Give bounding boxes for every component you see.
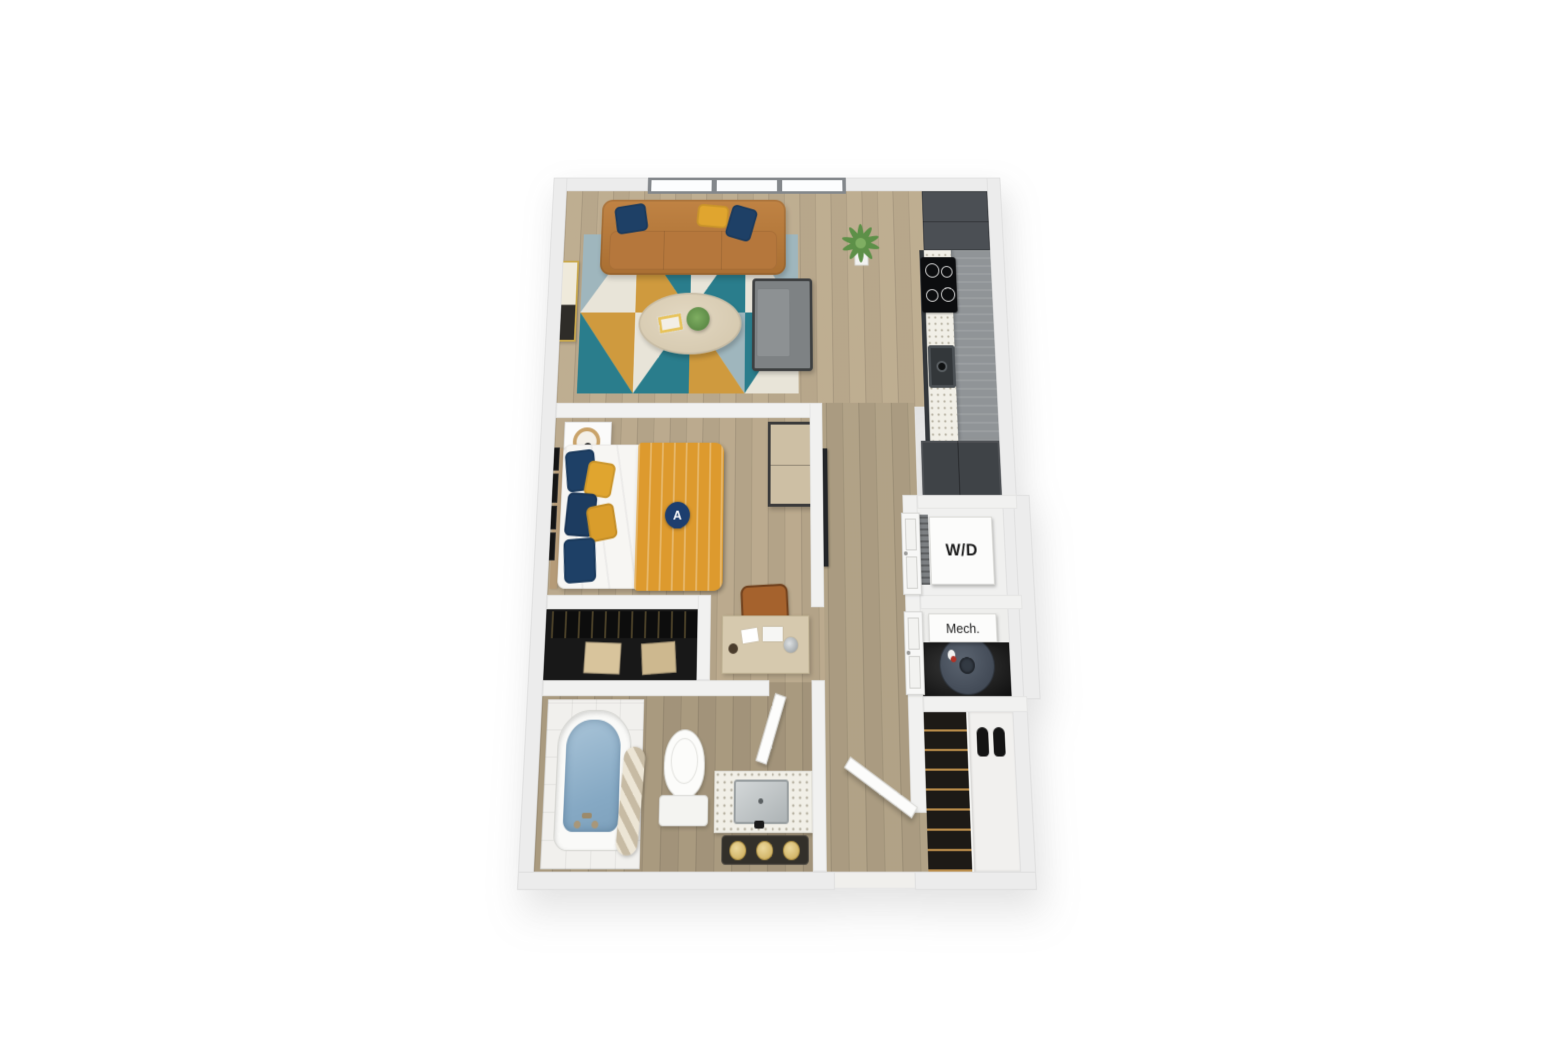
wall-living-bedroom <box>556 403 822 418</box>
entry-closet-shelves <box>924 712 973 871</box>
tub-faucet <box>573 811 599 831</box>
window-pane <box>717 180 777 191</box>
wall-wd-mech-divider <box>920 595 1022 609</box>
door-panel <box>906 556 918 588</box>
closet-storage-box <box>641 641 677 675</box>
door-knob <box>904 551 908 555</box>
candle <box>783 841 800 860</box>
wall-mech-entry-divider <box>923 696 1028 712</box>
washer-dryer-unit: W/D <box>929 517 995 585</box>
burner <box>926 289 939 302</box>
shoe <box>993 727 1006 756</box>
floorplan-canvas: W/D Mech. <box>0 0 1554 1058</box>
cooktop <box>920 257 957 312</box>
window-pane <box>782 180 842 191</box>
candle-tray <box>721 835 809 864</box>
kitchen-sink <box>928 345 956 388</box>
faucet-handle <box>574 821 581 829</box>
faucet-spout <box>582 813 592 819</box>
candle <box>729 841 746 860</box>
toilet <box>658 729 707 830</box>
sink-faucet <box>938 363 945 370</box>
wall-wd-top <box>917 495 1017 509</box>
faucet-handle <box>591 821 598 829</box>
mech-closet-door <box>904 611 925 695</box>
sofa-seat-cushions <box>609 231 777 270</box>
entry-closet-panel <box>968 712 1020 871</box>
burner <box>941 266 953 278</box>
closet-storage-box <box>583 642 621 675</box>
bedroom-closet-interior <box>543 609 711 680</box>
burner <box>941 287 956 301</box>
closet-hanging-clothes <box>551 611 703 638</box>
door-knob <box>907 651 911 655</box>
apartment-unit-a-floorplan: W/D Mech. <box>517 178 1037 890</box>
bed-pillow-navy-3 <box>563 537 596 584</box>
exterior-wall-bottom-left <box>517 872 835 890</box>
desk-paper <box>763 627 783 642</box>
desk-paper <box>741 628 759 644</box>
vanity-counter <box>714 771 813 833</box>
armchair <box>752 278 813 371</box>
wall-bathroom-hallway <box>812 680 827 871</box>
unit-badge-letter: A <box>673 508 682 523</box>
refrigerator <box>921 441 1002 497</box>
window-living <box>648 178 846 194</box>
entry-threshold <box>835 872 915 888</box>
door-panel <box>908 618 920 650</box>
exterior-wall-top-right <box>846 178 1001 192</box>
wall-closet-top <box>547 595 712 609</box>
mech-sign: Mech. <box>928 613 997 642</box>
wardrobe <box>768 422 816 507</box>
sofa-pillow-mustard <box>696 204 729 229</box>
wall-closet-right <box>696 595 711 680</box>
kitchen-tall-cabinets <box>922 191 990 250</box>
armchair-cushion <box>756 288 790 357</box>
desk-plant-pot <box>728 643 738 653</box>
vanity-faucet <box>754 821 764 829</box>
door-panel <box>909 656 921 689</box>
burner <box>925 263 940 277</box>
desk <box>721 615 809 673</box>
toilet-tank <box>659 795 709 826</box>
water-heater-valve-red <box>951 656 957 662</box>
washer-dryer-label: W/D <box>945 540 978 560</box>
wall-bathroom-top <box>542 680 769 696</box>
sofa-pillow-navy-left <box>614 203 648 235</box>
exterior-wall-bottom-right <box>914 872 1037 890</box>
wall-bedroom-hallway <box>810 403 825 607</box>
door-panel <box>905 519 917 551</box>
vanity-sink <box>734 780 789 824</box>
floor-plant <box>838 220 884 273</box>
candle <box>756 841 773 860</box>
desk-lamp <box>784 637 798 653</box>
shoe <box>976 727 989 756</box>
wd-closet-door <box>901 513 922 595</box>
window-pane <box>651 180 711 191</box>
water-heater-hub <box>959 657 975 674</box>
sink-drain <box>758 798 763 804</box>
mech-label: Mech. <box>946 620 980 636</box>
